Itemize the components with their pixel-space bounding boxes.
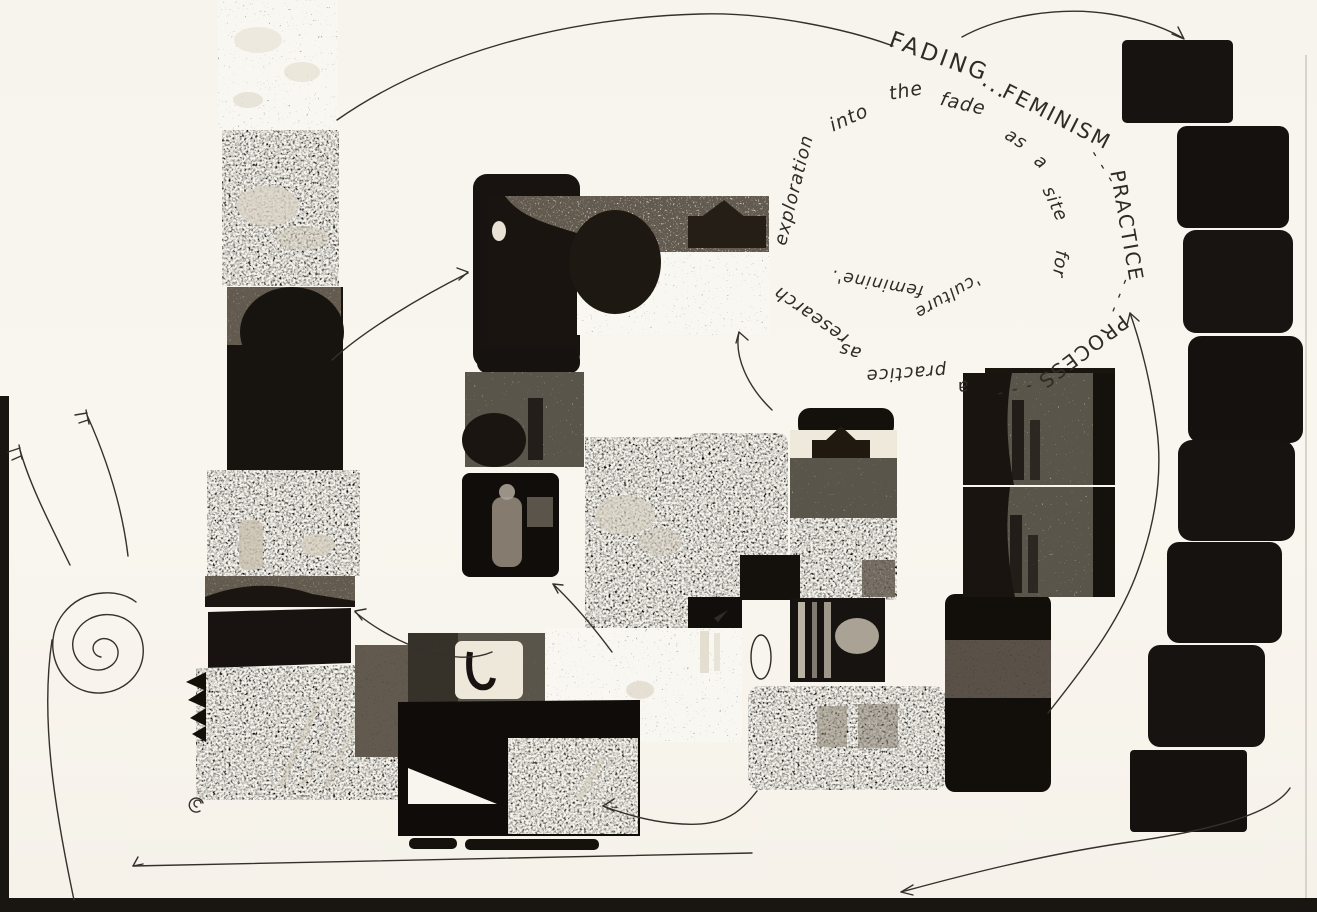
snail-shell-spiral xyxy=(53,593,144,693)
photo-stage-figure xyxy=(207,470,360,576)
film-strip-1 xyxy=(409,838,457,849)
dark-slide-3 xyxy=(1183,230,1293,333)
right-slide-column xyxy=(1122,40,1303,832)
dark-slide-1 xyxy=(1122,40,1233,123)
snail-antenna-right xyxy=(87,415,128,556)
dark-slide-8 xyxy=(1130,750,1247,832)
bottom-long-arrow xyxy=(133,853,752,866)
dark-slide-7 xyxy=(1148,645,1265,747)
spiral-loop-doodle xyxy=(189,798,203,812)
collage-page: FADING ... FEMINISM - - - PRACTICE - - -… xyxy=(0,0,1317,912)
film-strip-2 xyxy=(465,839,599,850)
oval-outline-doodle xyxy=(751,635,771,679)
snail-doodle xyxy=(8,410,203,900)
arrow-ring-to-house xyxy=(738,332,772,410)
left-photo-strip xyxy=(186,0,425,800)
hw-for: for xyxy=(1048,249,1073,279)
arrow-strip-to-slide xyxy=(332,273,468,360)
dark-slide-2 xyxy=(1177,126,1289,228)
dark-slide-5 xyxy=(1178,440,1295,541)
dark-slide-4 xyxy=(1188,336,1303,443)
photo-crowd-header xyxy=(477,350,580,373)
dark-slide-6 xyxy=(1167,542,1282,643)
snail-tail-line xyxy=(48,640,74,900)
arrow-to-slide-column xyxy=(962,11,1183,38)
photo-statue-texture xyxy=(218,0,338,131)
snail-antenna-left xyxy=(20,450,70,565)
collage-art xyxy=(0,0,1317,912)
photo-stacked-street-scenes xyxy=(963,368,1115,597)
arc-strip-to-fading xyxy=(337,14,893,120)
bottom-photo-cluster xyxy=(398,610,771,850)
photo-dark-wedge xyxy=(208,608,351,668)
